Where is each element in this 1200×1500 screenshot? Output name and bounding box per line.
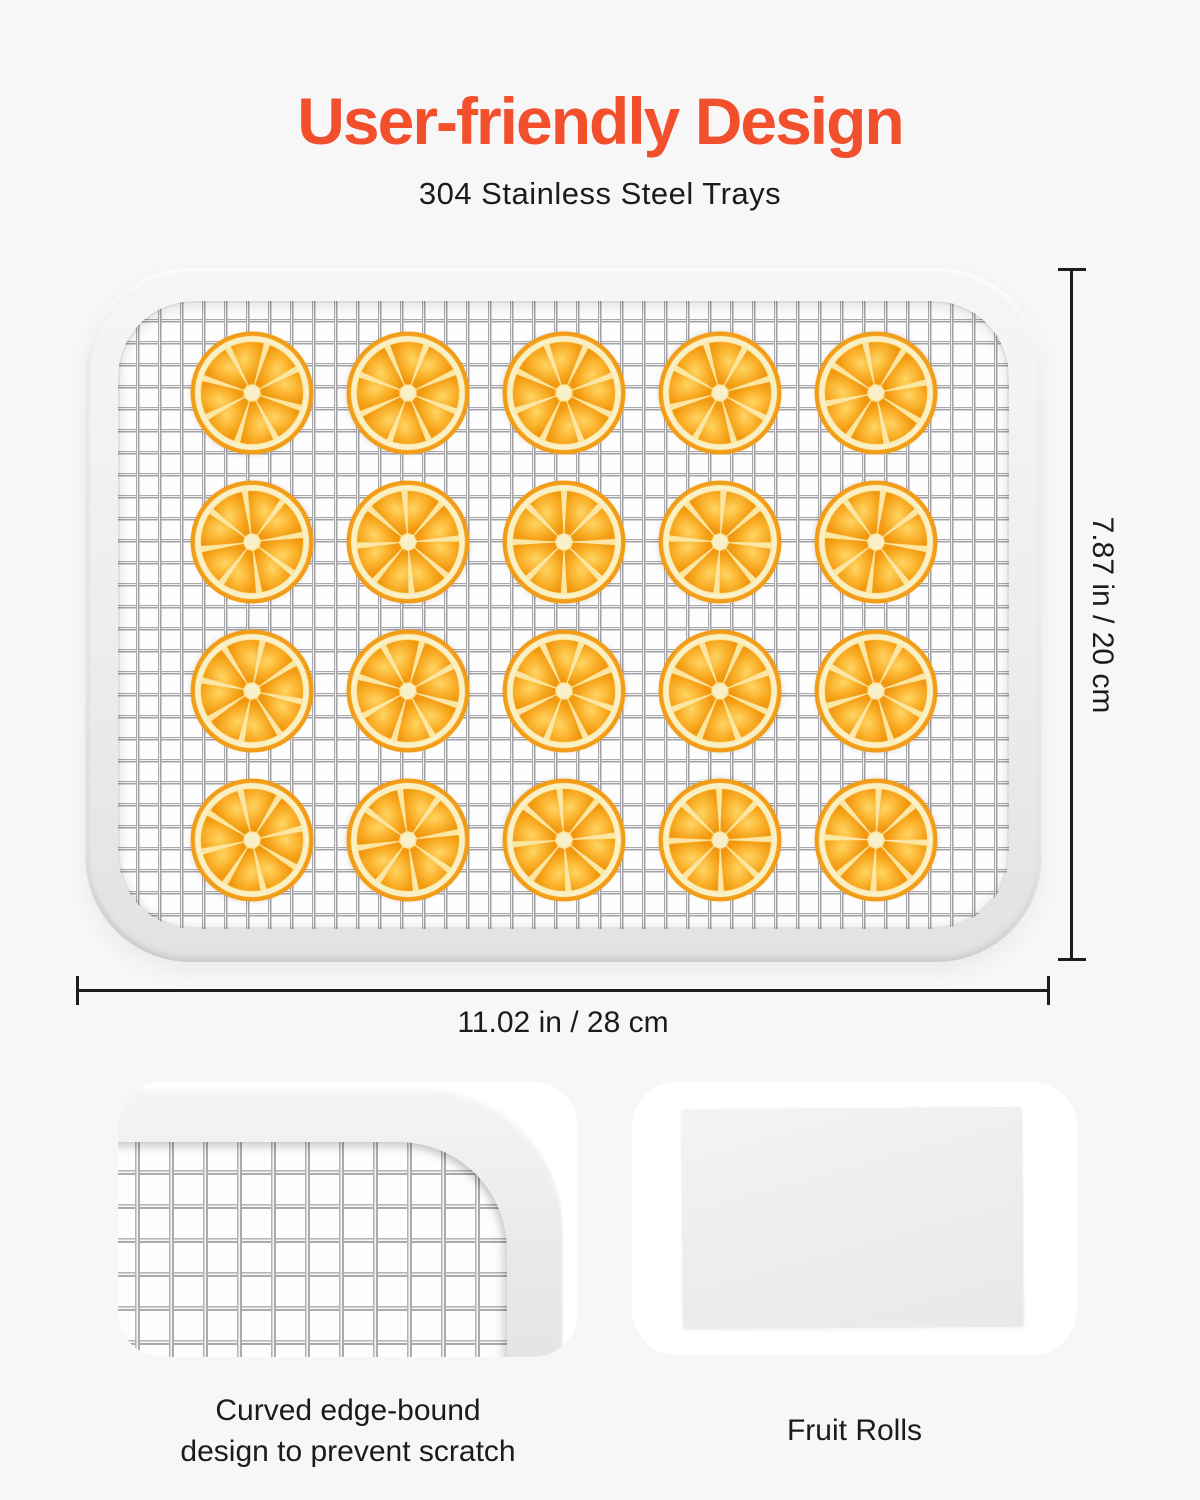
orange-slice-graphic [321, 455, 496, 630]
width-dimension-line [77, 989, 1050, 992]
orange-slice [182, 472, 322, 612]
orange-slice-graphic [477, 753, 652, 928]
feature-card-corner [118, 1082, 578, 1357]
caption-curved-edge: Curved edge-bound design to prevent scra… [168, 1390, 528, 1472]
orange-slice-graphic [331, 614, 484, 767]
orange-slice-graphic [643, 316, 796, 469]
feature-card-fruit-roll [632, 1082, 1077, 1355]
width-dimension-cap-right [1047, 976, 1050, 1005]
height-dimension-line [1070, 270, 1073, 961]
orange-slice [477, 753, 652, 928]
width-dimension-cap-left [76, 976, 79, 1005]
orange-slice-graphic [182, 472, 322, 612]
orange-slice [657, 777, 783, 903]
orange-slice [482, 311, 647, 476]
orange-slice-graphic [799, 614, 954, 769]
page-subtitle: 304 Stainless Steel Trays [0, 176, 1200, 212]
orange-slice-graphic [806, 472, 946, 612]
tray-corner-rim [118, 1086, 563, 1357]
orange-slice [638, 609, 802, 773]
tray-mesh [118, 301, 1009, 929]
orange-slice [482, 609, 647, 774]
orange-slice-graphic [788, 752, 963, 927]
orange-slice [326, 311, 490, 475]
orange-slice-graphic [482, 311, 647, 476]
infographic-page: User-friendly Design 304 Stainless Steel… [0, 0, 1200, 1500]
orange-slice [799, 614, 954, 769]
orange-slice [643, 316, 796, 469]
orange-slice-graphic [633, 455, 808, 630]
orange-slice [788, 752, 963, 927]
orange-slice [166, 605, 338, 777]
orange-slice [633, 455, 808, 630]
orange-slice-graphic [175, 316, 330, 471]
orange-slice [502, 480, 626, 604]
tray-corner-mesh [118, 1142, 507, 1357]
caption-fruit-rolls: Fruit Rolls [632, 1410, 1077, 1451]
orange-slice [806, 472, 946, 612]
orange-slice-graphic [638, 609, 802, 773]
orange-slice-graphic [166, 605, 338, 777]
height-dimension-cap-bottom [1058, 958, 1086, 961]
orange-slice-graphic [502, 480, 626, 604]
dehydrator-tray [85, 268, 1042, 962]
orange-slice-graphic [337, 769, 479, 911]
orange-slice [175, 316, 330, 471]
height-dimension-cap-top [1058, 268, 1086, 271]
orange-slice [331, 614, 484, 767]
orange-slice-graphic [482, 609, 647, 774]
orange-slice [167, 755, 338, 926]
width-dimension-label: 11.02 in / 28 cm [457, 1006, 668, 1040]
orange-slice [321, 455, 496, 630]
height-dimension-label: 7.87 in / 20 cm [1085, 517, 1119, 714]
page-title: User-friendly Design [0, 86, 1200, 156]
orange-slice-graphic [657, 777, 783, 903]
orange-slice-graphic [790, 307, 962, 479]
orange-slice [790, 307, 962, 479]
orange-slice-graphic [326, 311, 490, 475]
orange-slice [337, 769, 479, 911]
fruit-roll-sheet [681, 1106, 1024, 1329]
orange-slice-graphic [167, 755, 338, 926]
